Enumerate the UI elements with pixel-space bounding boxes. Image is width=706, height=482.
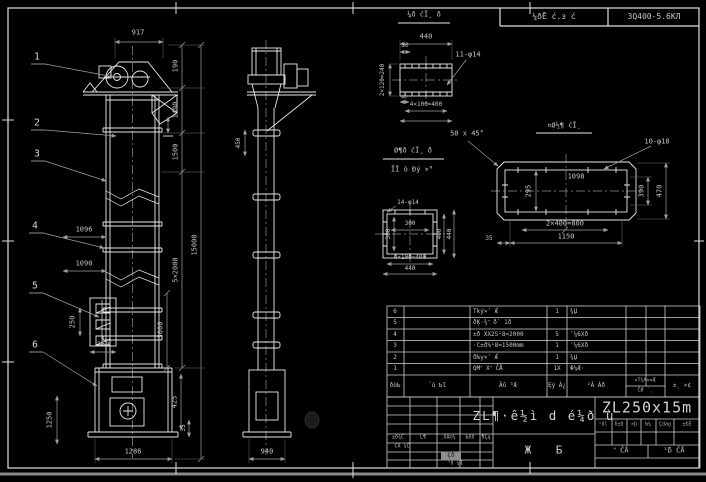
bom-row-qty: 1	[555, 355, 559, 361]
callout-1: 1	[34, 52, 40, 62]
bom-row-qty: 1	[555, 309, 559, 315]
detail-c-right-inner: 400	[437, 229, 443, 240]
bom-row-material: ¾Џ	[570, 309, 577, 315]
detail-c-width: 440	[405, 266, 416, 272]
dim-head-height: 1490	[173, 102, 180, 119]
dim-top: 190	[173, 60, 180, 73]
bom-row-name: ·C±ð%¹8=1500mm	[473, 343, 524, 349]
detail-a-left-spacing: 2×120=240	[380, 64, 386, 97]
detail-b-inner: 1098	[568, 174, 585, 181]
side-view	[243, 48, 319, 437]
inspection-door-upper	[112, 377, 142, 392]
sig-header: ×þ	[631, 423, 637, 428]
model-number: ZL250x15m	[602, 401, 692, 416]
rev-header: ¸ðÄ©¼	[440, 436, 455, 441]
bom-row-name: QMʺ Xʺ ČÅ	[473, 366, 503, 372]
callout-4: 4	[32, 221, 38, 231]
dim-boot-right: 425	[172, 396, 179, 409]
drawing-title: ZL¶·ê½ì d é¼ð ù	[473, 410, 616, 423]
bucket	[96, 320, 110, 329]
revision-badge: Çð	[447, 453, 454, 459]
callout-bars	[29, 64, 45, 352]
dim-bucket-width: 360	[97, 342, 110, 349]
boot-door-side	[256, 392, 278, 420]
smudge-artifact	[305, 412, 319, 428]
platform	[247, 92, 316, 95]
detail-b-holes: 10-φ18	[644, 139, 669, 146]
detail-a-offset: 30	[401, 43, 408, 49]
head-flange	[248, 75, 285, 84]
bom-row-qty: 1	[555, 343, 559, 349]
transition	[252, 84, 281, 108]
bom-row-name: ðĶ·¾ʺ ðʹ 1ð	[473, 320, 511, 326]
callout-3: 3	[34, 149, 40, 159]
drawing-subtitle: Ж Б	[525, 445, 572, 456]
detail-b-overall: 1150	[558, 234, 575, 241]
detail-a-title: ¼ð ćĪ¸ ð	[407, 12, 441, 19]
detail-a-width: 440	[420, 34, 433, 41]
dim-boot-height: 1250	[47, 412, 54, 429]
dim-bucket-height: 250	[70, 316, 77, 329]
bom-header-weight-bottom: ČØ ´¸	[637, 389, 652, 394]
bom-header-weight-top: ¤T¼X¤¤Æ	[634, 379, 655, 384]
sig-header: ĥ±ð	[614, 423, 623, 428]
detail-c-label2: ĪĪ ò Đý ×°	[391, 167, 433, 174]
dim-side-column: 450	[236, 138, 242, 149]
bom-header-code: ´ú ƄƖ	[428, 383, 446, 389]
rev-label: ĆÅ ¾Č	[394, 445, 409, 450]
dim-total-height: 15000	[192, 234, 199, 255]
rev-header: ±ð¾Č	[392, 436, 404, 441]
detail-b-title: ¤Ø½¶ ćĪ¸	[547, 123, 581, 130]
base-side	[243, 432, 291, 437]
bom-row-material: ¾Џ	[570, 355, 577, 361]
detail-c-right-outer: 440	[447, 229, 453, 240]
detail-b-chamfer: 50 x 45°	[450, 131, 484, 138]
bom-header-qty: Ęý Á¿	[548, 383, 566, 389]
check-right: ¹ƃ ČÅ	[663, 448, 684, 455]
callout-2: 2	[34, 118, 40, 128]
bom-row-name: ðƕy×ʹ Ǽ	[473, 355, 498, 361]
motor-box	[284, 64, 297, 88]
head-bracket	[83, 83, 97, 92]
motor-fan	[297, 69, 308, 86]
rev-header: Ĺ¶	[420, 436, 426, 441]
bom-header-material: ²Ă Áð	[587, 383, 605, 389]
bom-row-name: ±ð XX25¹8=2000	[473, 332, 524, 338]
detail-a-holes: 11-φ14	[455, 52, 480, 59]
dim-boot-section: 3000	[158, 322, 165, 339]
rev-header: ƄXð	[465, 436, 474, 441]
detail-c-spacing: 4×100=400	[394, 255, 427, 261]
boot-casing	[95, 368, 172, 432]
dim-pitch-b: 1090	[76, 261, 93, 268]
bom-row-qty: 5	[555, 332, 559, 338]
cad-drawing-canvas: ¼ðĒ ć.з ć 3Q400-5.6ΚЛ 1 2 3 4 5 6 917 19…	[0, 0, 706, 482]
dimension-lines	[57, 42, 666, 459]
motor-circle	[132, 71, 148, 87]
detail-b-right-outer: 470	[657, 185, 664, 198]
header-project-label: ¼ðĒ ć.з ć	[532, 13, 575, 21]
dim-boot-small: 35	[181, 424, 187, 431]
callout-6: 6	[32, 340, 38, 350]
front-view	[83, 62, 178, 437]
detail-b-left-small: 35	[485, 236, 492, 242]
bom-row-material: Φ¼Æ·	[570, 366, 584, 372]
detail-b-plate	[497, 133, 636, 220]
bom-row-name: Tký×ʹ Ǽ	[473, 309, 498, 315]
bom-row-material: ʾ¼6Χð	[570, 343, 588, 349]
header-drawing-number: 3Q400-5.6ΚЛ	[628, 13, 681, 21]
bom-row-seq: 3	[393, 343, 397, 349]
detail-b-spacing: 2×400=800	[546, 221, 584, 228]
dim-boot-width: 1286	[125, 449, 142, 456]
rev-header: ¶Çą	[481, 436, 490, 441]
bom-row-qty: 1X	[553, 366, 560, 372]
detail-a-small: 40	[401, 96, 407, 101]
boot-side	[249, 370, 285, 432]
callout-5: 5	[32, 281, 38, 291]
bom-row-material: ʾ¼6Χð	[570, 332, 588, 338]
rev-sub-label: ¹ð ¼Æ	[447, 462, 462, 467]
bom-header-seq: ðòƄ	[390, 383, 401, 389]
base-plate	[88, 432, 178, 437]
sig-header: ±ƅƗ	[682, 423, 691, 428]
dim-pitch-a: 1096	[76, 227, 93, 234]
dim-upper-section: 1500	[173, 144, 180, 161]
detail-c-inner-h: 300	[386, 229, 392, 240]
detail-c-label1: Ø¶ð ćĪ¸ ð	[394, 148, 432, 155]
bom-row-seq: 2	[393, 355, 397, 361]
detail-b-right-inner: 390	[639, 185, 646, 198]
dim-side-base: 940	[261, 449, 274, 456]
sig-header: Ƅ¼	[645, 423, 651, 428]
bom-header-name: Ăû ³Æ	[499, 383, 517, 389]
dim-mid-sections: 5×2000	[173, 257, 180, 282]
sig-header: Çdag	[659, 423, 671, 428]
inspection-door-lower	[110, 398, 144, 426]
bom-row-seq: 4	[393, 332, 397, 338]
detail-c-holes: 14-φ14	[397, 200, 419, 206]
check-left: ʺ ČÅ	[613, 448, 628, 455]
bom-row-seq: 1	[393, 366, 397, 372]
sig-header: ¹ðl	[598, 423, 607, 428]
bom-header-note: ±¸ ×¢	[673, 383, 691, 389]
detail-c-inner-w: 300	[405, 221, 416, 227]
dim-head-width: 917	[132, 30, 145, 37]
detail-a-spacing: 4×100=400	[410, 102, 443, 108]
bom-row-seq: 6	[393, 309, 397, 315]
detail-b-height: 295	[526, 185, 533, 198]
bom-row-seq: 5	[393, 320, 397, 326]
